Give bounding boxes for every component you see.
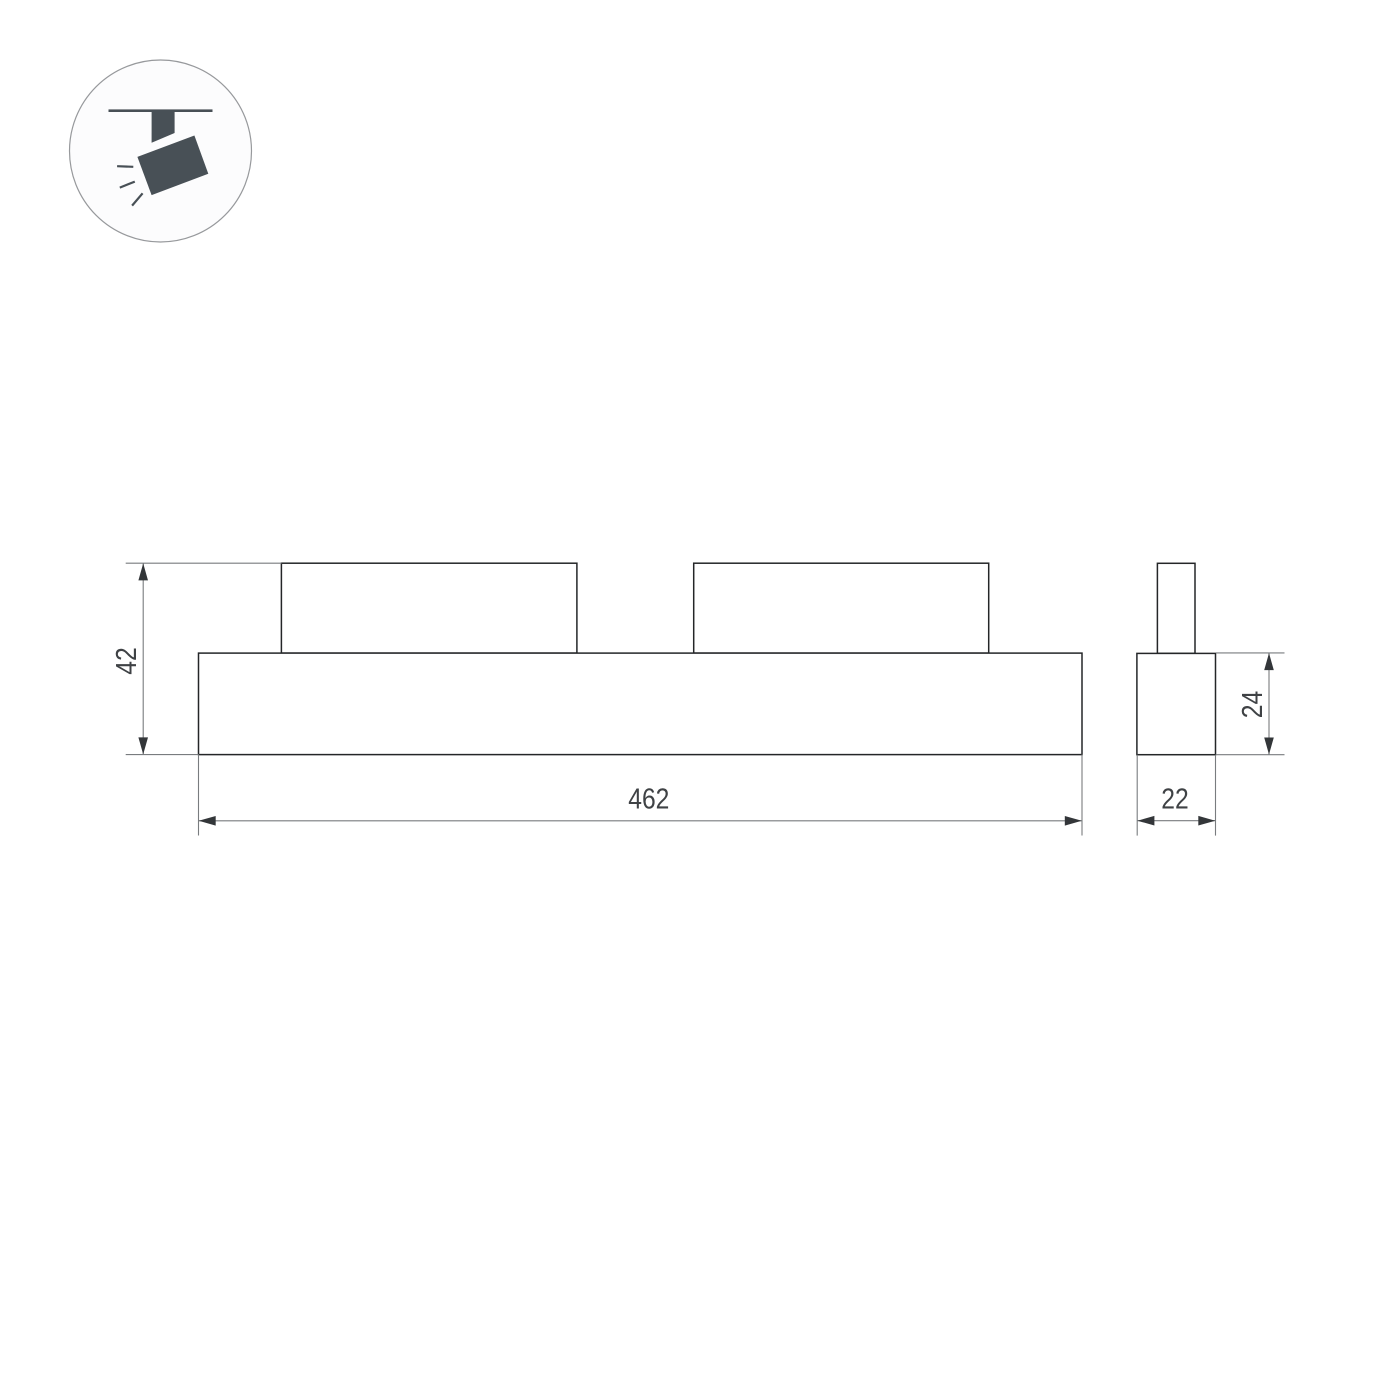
svg-text:462: 462 — [628, 782, 669, 814]
svg-text:42: 42 — [110, 647, 142, 674]
svg-text:24: 24 — [1236, 691, 1268, 718]
svg-text:22: 22 — [1161, 783, 1188, 815]
